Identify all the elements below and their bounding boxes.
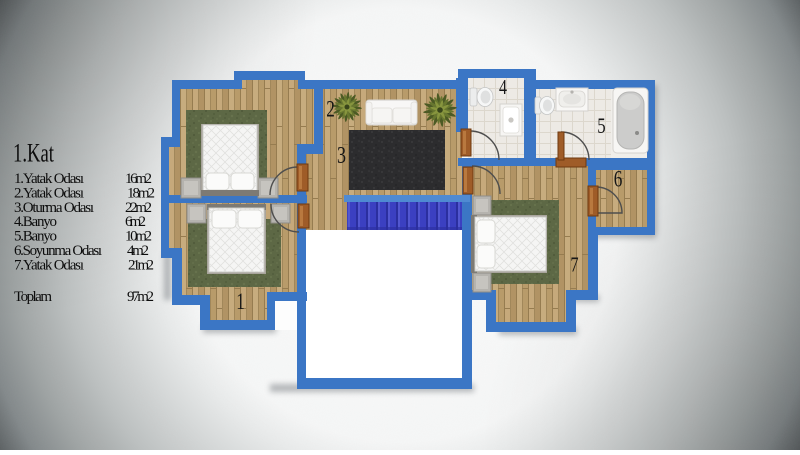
svg-text:5: 5 [597, 113, 605, 138]
svg-text:3: 3 [337, 143, 346, 169]
svg-text:1: 1 [236, 289, 245, 314]
svg-text:Toplam: Toplam [14, 289, 52, 305]
svg-text:7.Yatak Odası: 7.Yatak Odası [14, 257, 84, 273]
svg-text:1.Kat: 1.Kat [13, 139, 55, 168]
svg-text:7: 7 [570, 253, 578, 277]
svg-text:2: 2 [326, 97, 335, 122]
svg-text:21m2: 21m2 [128, 257, 154, 273]
svg-text:4: 4 [499, 75, 507, 99]
svg-text:97m2: 97m2 [127, 289, 154, 305]
svg-text:6: 6 [614, 167, 623, 192]
